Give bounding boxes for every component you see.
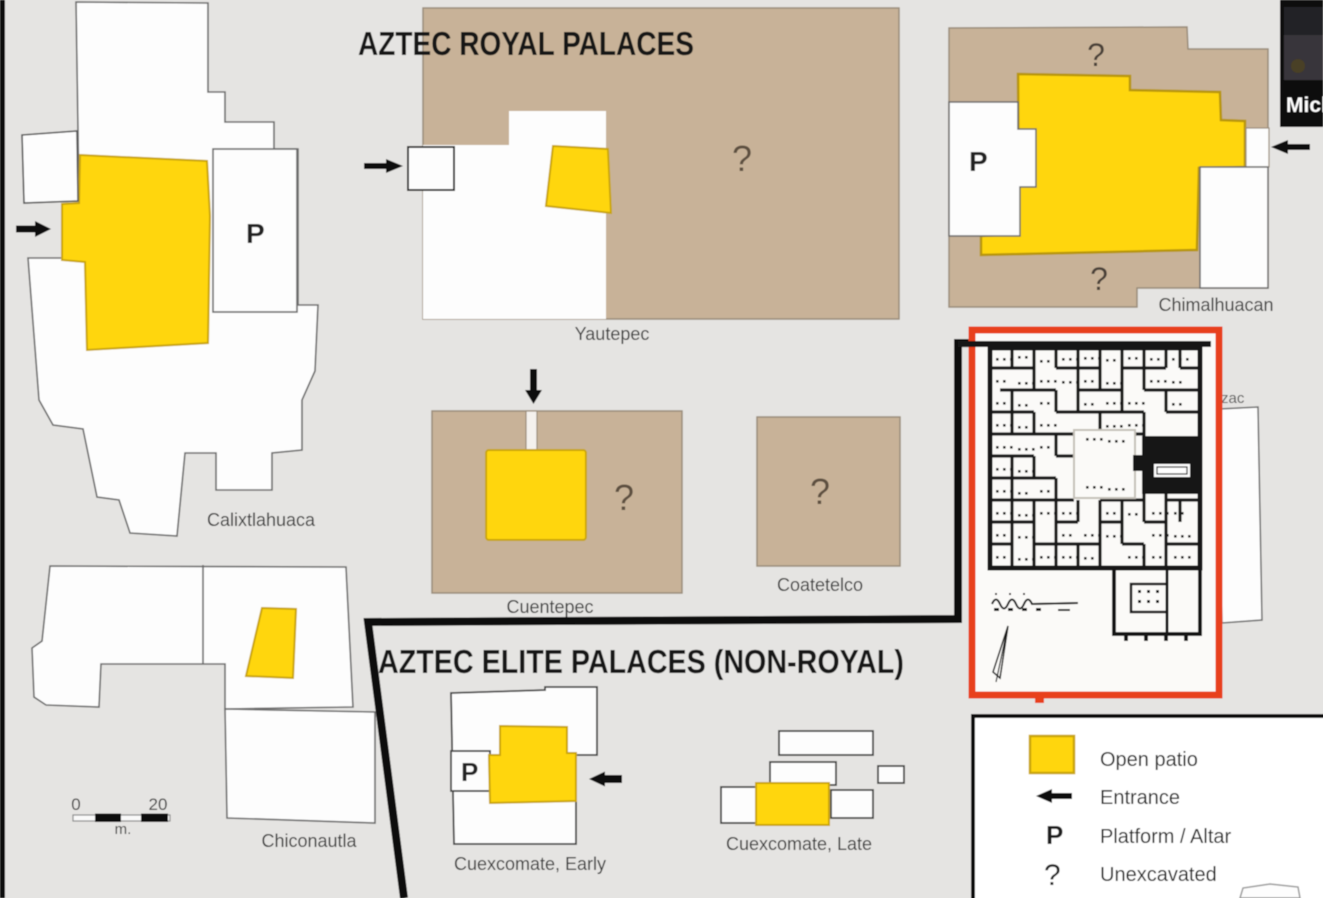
svg-text:zac: zac bbox=[1221, 390, 1245, 407]
svg-text:P: P bbox=[246, 218, 265, 249]
svg-text:P: P bbox=[461, 757, 478, 787]
svg-text:Platform / Altar: Platform / Altar bbox=[1100, 826, 1231, 848]
svg-text:Open patio: Open patio bbox=[1100, 749, 1198, 771]
svg-text:?: ? bbox=[614, 477, 634, 518]
svg-text:Mich: Mich bbox=[1286, 94, 1323, 117]
svg-text:Entrance: Entrance bbox=[1100, 787, 1180, 809]
svg-text:?: ? bbox=[1090, 261, 1108, 297]
svg-text:Unexcavated: Unexcavated bbox=[1100, 864, 1217, 886]
svg-text:0: 0 bbox=[71, 795, 80, 814]
svg-text:Coatetelco: Coatetelco bbox=[777, 575, 863, 595]
svg-text:Cuexcomate, Late: Cuexcomate, Late bbox=[726, 834, 872, 854]
svg-text:Cuexcomate, Early: Cuexcomate, Early bbox=[454, 854, 606, 874]
svg-text:Chiconautla: Chiconautla bbox=[261, 831, 357, 851]
svg-text:AZTEC ELITE PALACES (NON-ROYAL: AZTEC ELITE PALACES (NON-ROYAL) bbox=[378, 643, 904, 680]
svg-text:m.: m. bbox=[115, 821, 132, 838]
svg-text:Cuentepec: Cuentepec bbox=[506, 597, 593, 617]
svg-text:P: P bbox=[1046, 820, 1063, 850]
svg-text:Yautepec: Yautepec bbox=[575, 324, 650, 344]
svg-text:?: ? bbox=[1087, 37, 1105, 73]
svg-text:?: ? bbox=[732, 138, 752, 179]
svg-text:?: ? bbox=[1044, 859, 1061, 892]
svg-text:20: 20 bbox=[149, 795, 168, 814]
svg-text:P: P bbox=[969, 146, 988, 177]
svg-text:AZTEC ROYAL PALACES: AZTEC ROYAL PALACES bbox=[358, 26, 694, 63]
svg-text:?: ? bbox=[810, 471, 830, 512]
svg-text:Calixtlahuaca: Calixtlahuaca bbox=[207, 510, 316, 530]
svg-text:Chimalhuacan: Chimalhuacan bbox=[1158, 295, 1273, 315]
